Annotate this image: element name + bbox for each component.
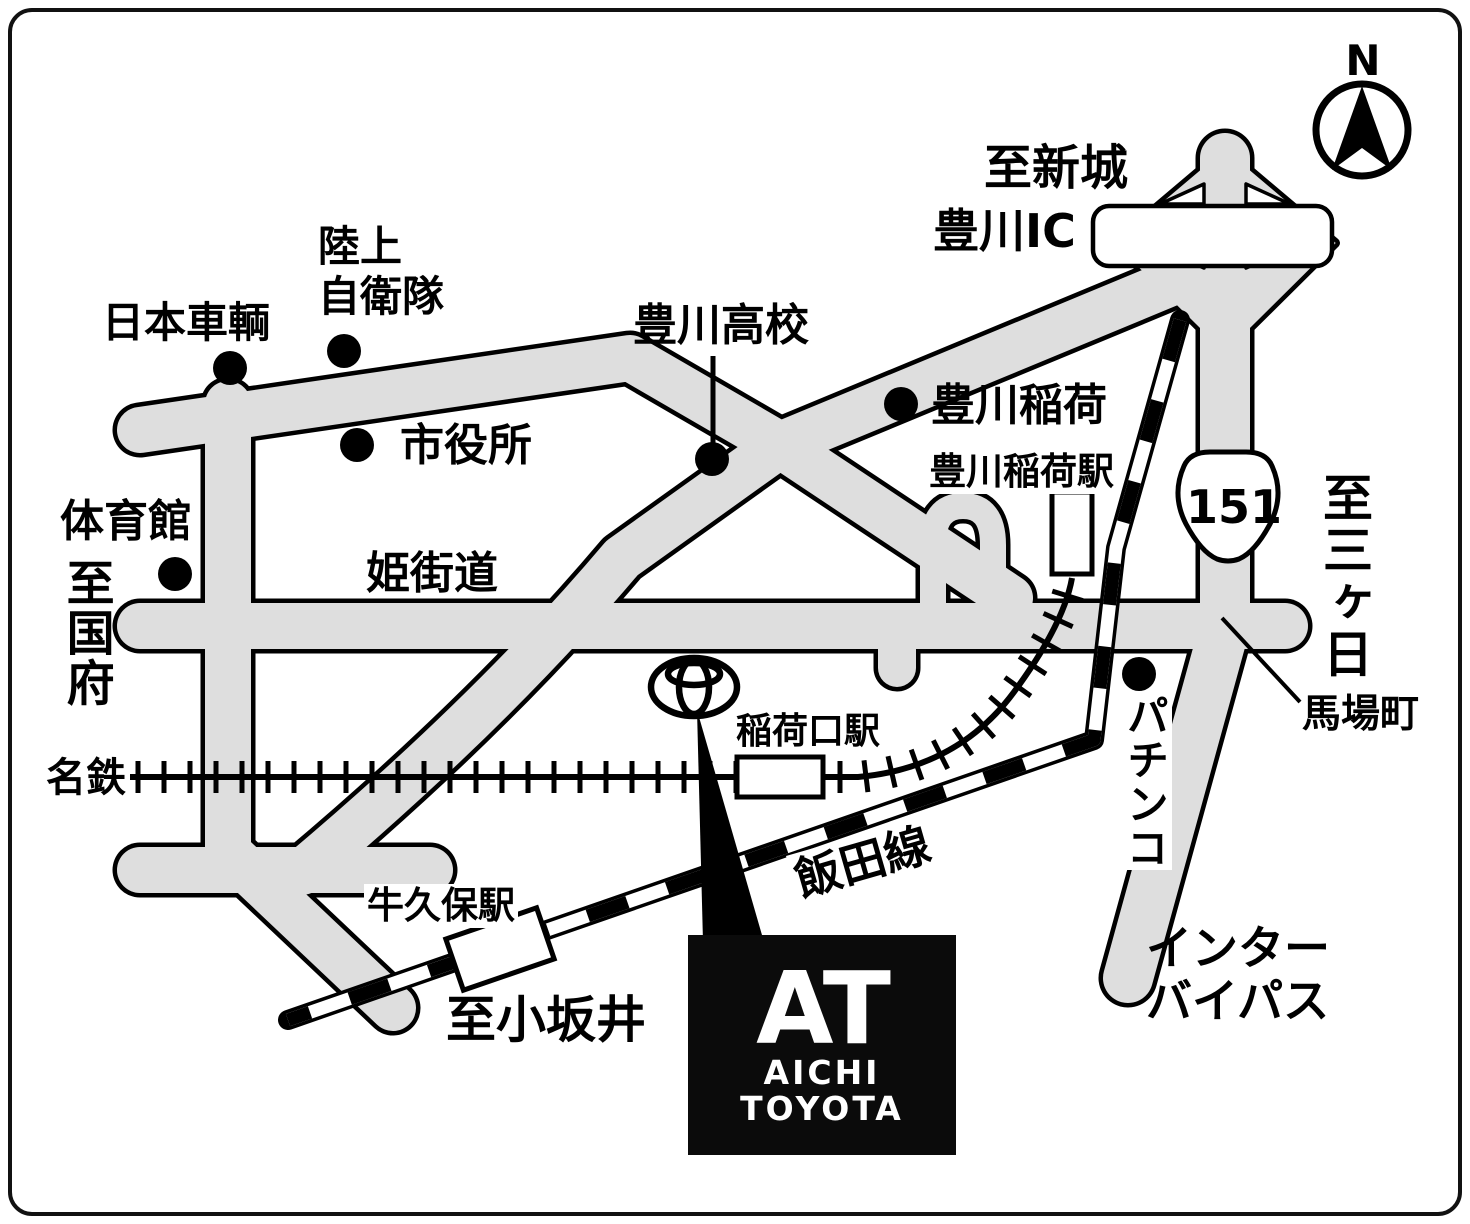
taiikukan-label: 体育館 — [60, 496, 192, 549]
toyokawa-inari-label: 豊川稲荷 — [931, 380, 1107, 433]
dest-shinshiro-label: 至新城 — [984, 140, 1128, 198]
meitetsu-label: 名鉄 — [46, 754, 126, 802]
baba-cho-label: 馬場町 — [1302, 692, 1419, 739]
jieitai-label: 陸上 自衛隊 — [318, 222, 444, 323]
toyokawa-inari-station-box — [1052, 492, 1092, 574]
dest-kokufu-label: 至国府 — [56, 558, 114, 708]
dest-kozakai-label: 至小坂井 — [446, 990, 646, 1050]
shiyakusho-label: 市役所 — [400, 420, 532, 473]
at-monogram: AT — [756, 963, 888, 1055]
logo-line2: TOYOTA — [740, 1091, 904, 1127]
ushikubo-station-label: 牛久保駅 — [364, 884, 518, 928]
compass-north-label: N — [1344, 36, 1382, 85]
aichi-toyota-logo-box: AT AICHI TOYOTA — [688, 935, 956, 1155]
toyota-emblem-icon — [651, 658, 737, 716]
nihon-sharyo-label: 日本車輌 — [102, 298, 270, 348]
toyokawa-koko-label: 豊川高校 — [633, 300, 809, 353]
inariguchi-station-label: 稲荷口駅 — [733, 710, 883, 753]
logo-line1: AICHI — [764, 1055, 881, 1091]
inariguchi-station-box — [737, 757, 823, 797]
toyokawa-inari-station-label: 豊川稲荷駅 — [926, 450, 1117, 494]
toyokawa-ic-label: 豊川IC — [933, 204, 1076, 259]
himekaido-label: 姫街道 — [366, 548, 498, 601]
route-151-number: 151 — [1186, 480, 1272, 534]
ic-overpass — [1093, 206, 1332, 266]
inter-bypass-label: インター バイパス — [1146, 922, 1330, 1028]
access-map-canvas: 至新城 豊川IC 陸上 自衛隊 日本車輌 市役所 豊川高校 豊川稲荷 豊川稲荷駅… — [0, 0, 1470, 1224]
compass-icon — [1316, 84, 1408, 176]
pachinko-label: パチンコ — [1116, 694, 1172, 870]
dest-mikkabi-label: 至三ヶ日 — [1314, 472, 1374, 680]
